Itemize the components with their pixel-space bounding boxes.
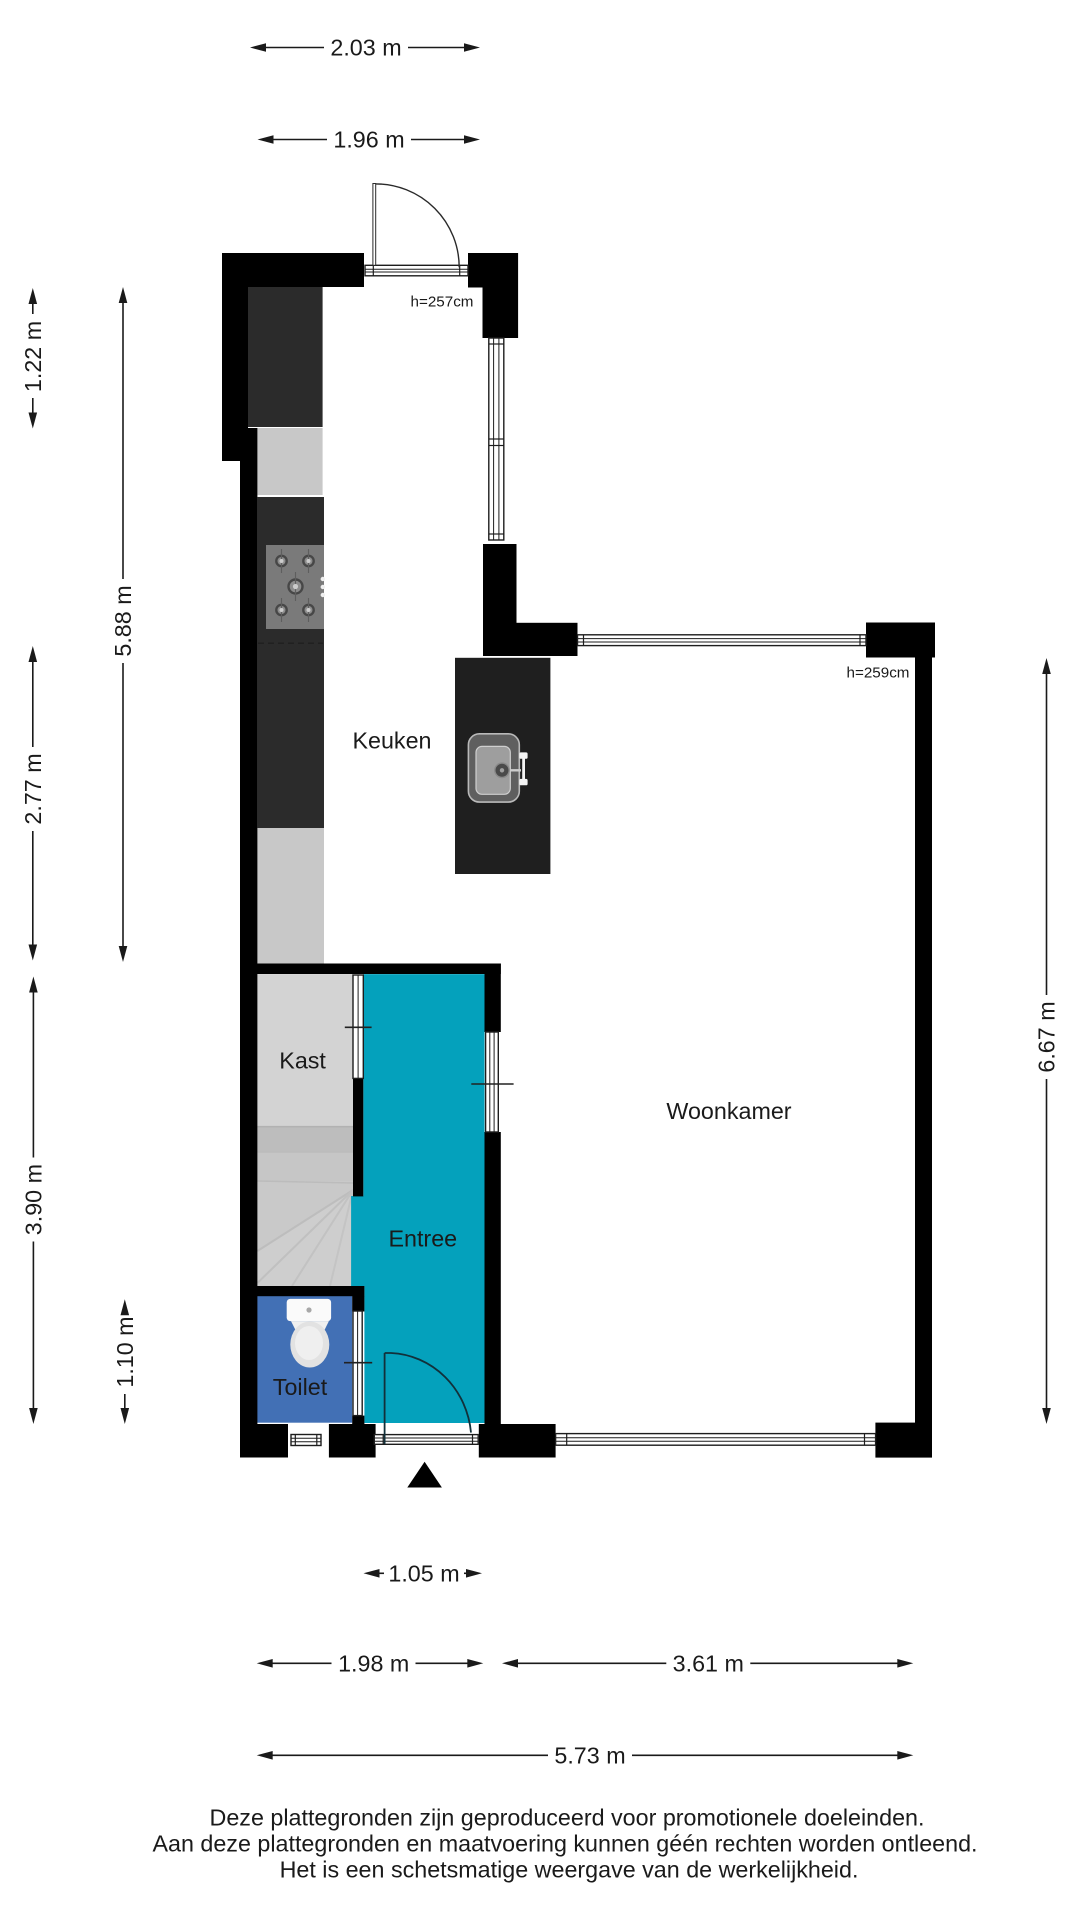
svg-text:Deze plattegronden zijn geprod: Deze plattegronden zijn geproduceerd voo… bbox=[210, 1805, 925, 1831]
svg-text:5.88 m: 5.88 m bbox=[110, 585, 136, 656]
svg-text:1.05 m: 1.05 m bbox=[388, 1560, 459, 1586]
svg-text:h=259cm: h=259cm bbox=[847, 665, 910, 682]
svg-text:1.98 m: 1.98 m bbox=[338, 1650, 409, 1676]
svg-text:Entree: Entree bbox=[388, 1226, 457, 1252]
svg-text:Kast: Kast bbox=[279, 1048, 326, 1074]
svg-text:h=257cm: h=257cm bbox=[411, 294, 474, 311]
svg-text:5.73 m: 5.73 m bbox=[554, 1742, 625, 1768]
svg-text:3.90 m: 3.90 m bbox=[20, 1164, 46, 1235]
svg-text:2.03 m: 2.03 m bbox=[330, 35, 401, 61]
svg-text:2.77 m: 2.77 m bbox=[20, 753, 46, 824]
svg-text:1.96 m: 1.96 m bbox=[333, 127, 404, 153]
svg-text:Aan deze plattegronden en maat: Aan deze plattegronden en maatvoering ku… bbox=[152, 1831, 977, 1857]
svg-text:1.22 m: 1.22 m bbox=[20, 321, 46, 392]
svg-text:3.61 m: 3.61 m bbox=[673, 1650, 744, 1676]
svg-text:Het is een schetsmatige weerga: Het is een schetsmatige weergave van de … bbox=[280, 1857, 859, 1883]
svg-text:Keuken: Keuken bbox=[352, 728, 431, 754]
svg-text:6.67 m: 6.67 m bbox=[1034, 1001, 1060, 1072]
svg-text:1.10 m: 1.10 m bbox=[112, 1316, 138, 1387]
svg-text:Woonkamer: Woonkamer bbox=[666, 1098, 791, 1124]
svg-text:Toilet: Toilet bbox=[273, 1374, 328, 1400]
